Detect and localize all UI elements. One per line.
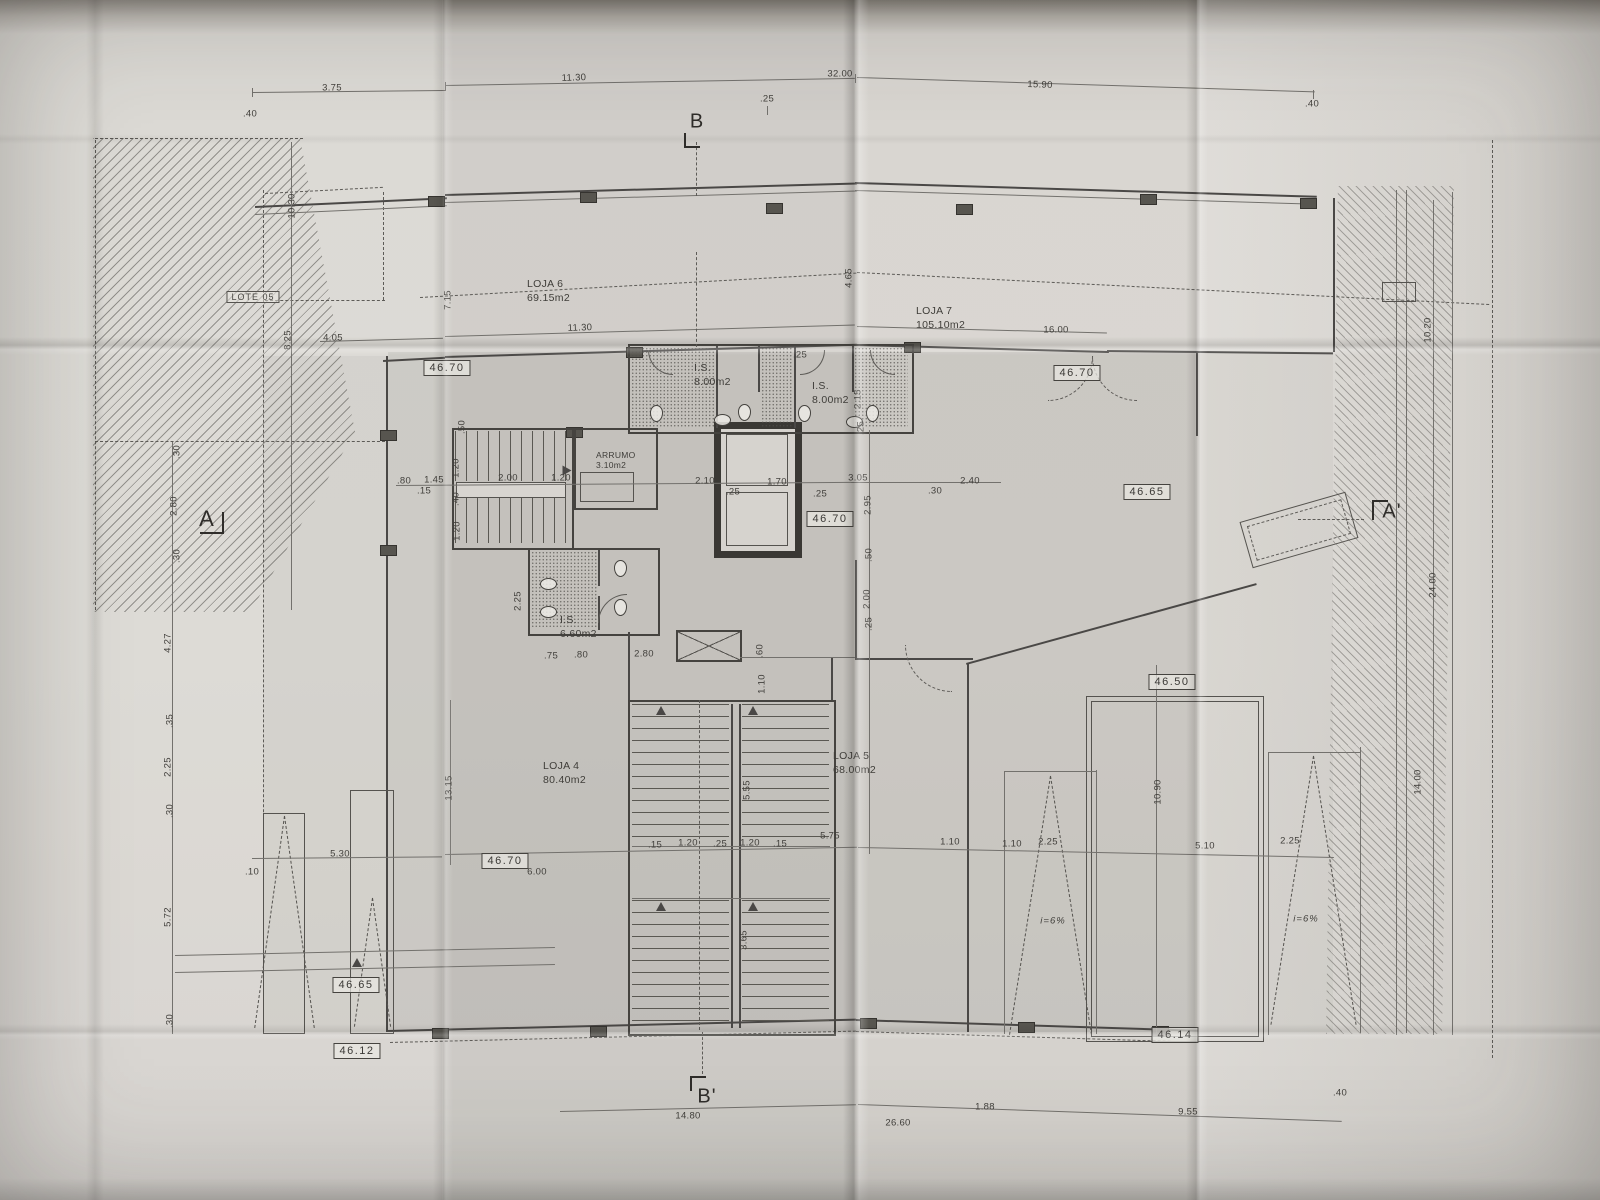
room-label: ARRUMO3.10m2: [596, 450, 636, 470]
dimension-label: 2.10: [695, 476, 715, 487]
room-area: 69.15m2: [527, 292, 570, 306]
dimension-label: 6.00: [527, 867, 547, 878]
dimension-label: .50: [457, 420, 468, 434]
dimension-label: 10.20: [1423, 317, 1434, 342]
dimension-label: 1.20: [740, 838, 760, 849]
dimension-label: 24.00: [1428, 572, 1439, 597]
room-name: LOJA 4: [543, 760, 586, 774]
dimension-label: 1.20: [451, 458, 462, 478]
dimension-label: 5.10: [1195, 841, 1215, 852]
dimension-label: 2.00: [862, 589, 873, 609]
dimension-label: .30: [172, 445, 183, 459]
dimension-label: 26.60: [885, 1118, 910, 1129]
dimension-label: .25: [760, 94, 774, 105]
dimension-label: 1.10: [1002, 839, 1022, 850]
room-area: 3.10m2: [596, 460, 636, 470]
dimension-label: .60: [755, 644, 766, 658]
room-label: I.S.8.00m2: [812, 380, 849, 407]
dimension-label: 10.90: [1153, 779, 1164, 804]
dimension-label: .25: [793, 350, 807, 361]
dimension-label: 2.00: [498, 473, 518, 484]
dimension-label: 3.65: [739, 930, 750, 950]
dimension-label: .40: [451, 492, 462, 506]
elevation-badge: 46.70: [1053, 365, 1100, 381]
dimension-label: 5.75: [820, 831, 840, 842]
dimension-label: .30: [165, 1014, 176, 1028]
dimension-label: 2.80: [169, 496, 180, 516]
dimension-label: .40: [1333, 1088, 1347, 1099]
dimension-label: 11.30: [562, 72, 587, 84]
dimension-label: .10: [245, 867, 259, 878]
dimension-label: 8.25: [283, 330, 294, 350]
room-label: I.S.6.60m2: [560, 614, 597, 641]
dimension-label: .25: [726, 487, 740, 498]
room-area: 105.10m2: [916, 319, 965, 333]
dimension-label: .50: [864, 548, 875, 562]
dimension-label: 11.30: [568, 322, 593, 334]
elevation-badge: 46.14: [1151, 1027, 1198, 1043]
dimension-label: 2.80: [634, 649, 654, 660]
dimension-label: 3.75: [322, 83, 342, 94]
room-name: LOJA 5: [833, 750, 876, 764]
dimension-label: .40: [1305, 99, 1319, 110]
dimension-label: .25: [856, 421, 867, 435]
dimension-label: 2.15: [853, 389, 864, 409]
dimension-label: 1.20: [678, 838, 698, 849]
elevation-badge: 46.65: [1123, 484, 1170, 500]
dimension-label: 15.90: [1027, 79, 1053, 91]
dimension-label: 2.25: [1280, 836, 1300, 847]
dimension-label: .30: [172, 549, 183, 563]
room-area: 8.00m2: [694, 376, 731, 390]
room-name: LOJA 7: [916, 305, 965, 319]
slope-label: i=6%: [1293, 914, 1318, 925]
room-label: I.S.8.00m2: [694, 362, 731, 389]
elevation-badge: 46.12: [333, 1043, 380, 1059]
room-name: I.S.: [560, 614, 597, 628]
dimension-label: 1.20: [551, 473, 571, 484]
label-layer: .403.7511.3032.00.2515.90.404.0511.3016.…: [0, 0, 1600, 1200]
dimension-label: .25: [813, 489, 827, 500]
dimension-label: 13.15: [444, 775, 455, 800]
room-name: ARRUMO: [596, 450, 636, 460]
dimension-label: 2.95: [863, 495, 874, 515]
room-label: LOJA 7105.10m2: [916, 305, 965, 332]
dimension-label: 5.30: [330, 849, 350, 860]
dimension-label: .30: [928, 486, 942, 497]
dimension-label: 4.05: [323, 333, 343, 344]
dimension-label: 2.25: [163, 757, 174, 777]
room-name: I.S.: [812, 380, 849, 394]
dimension-label: 9.55: [1178, 1107, 1198, 1118]
dimension-label: 1.10: [757, 674, 768, 694]
dimension-label: 1.45: [424, 475, 444, 486]
elevation-badge: 46.70: [806, 511, 853, 527]
dimension-label: .30: [165, 804, 176, 818]
dimension-label: .15: [417, 486, 431, 497]
dimension-label: .40: [243, 109, 257, 120]
room-label: LOJA 480.40m2: [543, 760, 586, 787]
dimension-label: 1.88: [975, 1102, 995, 1113]
elevation-badge: 46.70: [423, 360, 470, 376]
dimension-label: .25: [713, 839, 727, 850]
dimension-label: 14.00: [1413, 769, 1424, 794]
room-area: 6.60m2: [560, 628, 597, 642]
dimension-label: 2.40: [960, 476, 980, 487]
elevation-badge: 46.50: [1148, 674, 1195, 690]
room-area: 68.00m2: [833, 764, 876, 778]
floorplan-photo: B B' A A' LOTE 05 .403.7511.3032.00.2515…: [0, 0, 1600, 1200]
dimension-label: 2.25: [513, 591, 524, 611]
room-area: 8.00m2: [812, 394, 849, 408]
room-label: LOJA 669.15m2: [527, 278, 570, 305]
elevation-badge: 46.70: [481, 853, 528, 869]
dimension-label: 32.00: [827, 69, 852, 80]
dimension-label: 10.30: [287, 193, 298, 218]
dimension-label: 1.20: [452, 521, 463, 541]
room-name: LOJA 6: [527, 278, 570, 292]
dimension-label: .80: [397, 476, 411, 487]
dimension-label: .80: [574, 650, 588, 661]
dimension-label: 5.72: [163, 907, 174, 927]
dimension-label: 7.15: [443, 290, 454, 310]
dimension-label: .35: [165, 714, 176, 728]
dimension-label: 1.70: [767, 477, 787, 488]
dimension-label: .15: [773, 839, 787, 850]
room-label: LOJA 568.00m2: [833, 750, 876, 777]
dimension-label: 1.10: [940, 837, 960, 848]
dimension-label: 4.65: [844, 268, 855, 288]
dimension-label: 3.05: [848, 473, 868, 484]
room-name: I.S.: [694, 362, 731, 376]
room-area: 80.40m2: [543, 774, 586, 788]
elevation-badge: 46.65: [332, 977, 379, 993]
dimension-label: .25: [864, 617, 875, 631]
dimension-label: 2.25: [1038, 837, 1058, 848]
dimension-label: .15: [648, 840, 662, 851]
slope-label: i=6%: [1040, 916, 1065, 927]
dimension-label: 14.80: [675, 1111, 700, 1122]
dimension-label: 4.27: [163, 633, 174, 653]
dimension-label: 5.55: [742, 780, 753, 800]
dimension-label: 16.00: [1043, 325, 1068, 336]
dimension-label: .75: [544, 651, 558, 662]
